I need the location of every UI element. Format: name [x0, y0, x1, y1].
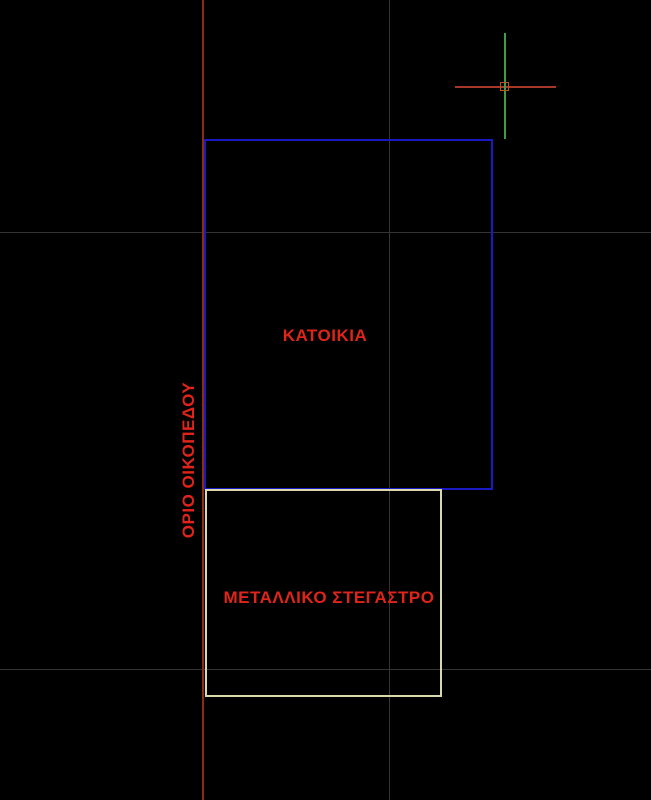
plot-boundary-label[interactable]: ΟΡΙΟ ΟΙΚΟΠΕΔΟΥ: [179, 382, 199, 538]
drawing-canvas[interactable]: ΚΑΤΟΙΚΙΑ ΜΕΤΑΛΛΙΚΟ ΣΤΕΓΑΣΤΡΟ ΟΡΙΟ ΟΙΚΟΠΕ…: [0, 0, 651, 800]
house-label[interactable]: ΚΑΤΟΙΚΙΑ: [283, 326, 367, 346]
canopy-label[interactable]: ΜΕΤΑΛΛΙΚΟ ΣΤΕΓΑΣΤΡΟ: [224, 588, 435, 608]
house-outline-rect[interactable]: [204, 139, 493, 490]
pickbox-icon: [500, 82, 509, 91]
